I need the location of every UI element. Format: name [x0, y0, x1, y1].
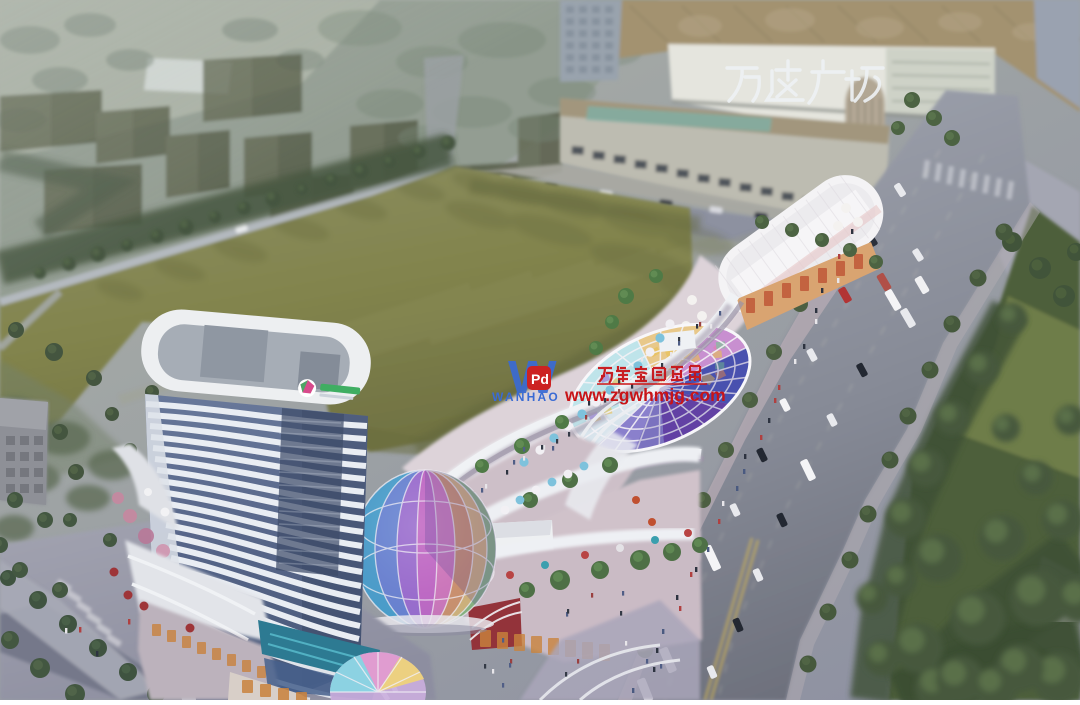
svg-text:Pd: Pd: [531, 371, 549, 387]
svg-text:www.zgwhmjg.com: www.zgwhmjg.com: [564, 385, 726, 405]
svg-text:WANHAO: WANHAO: [492, 390, 560, 404]
